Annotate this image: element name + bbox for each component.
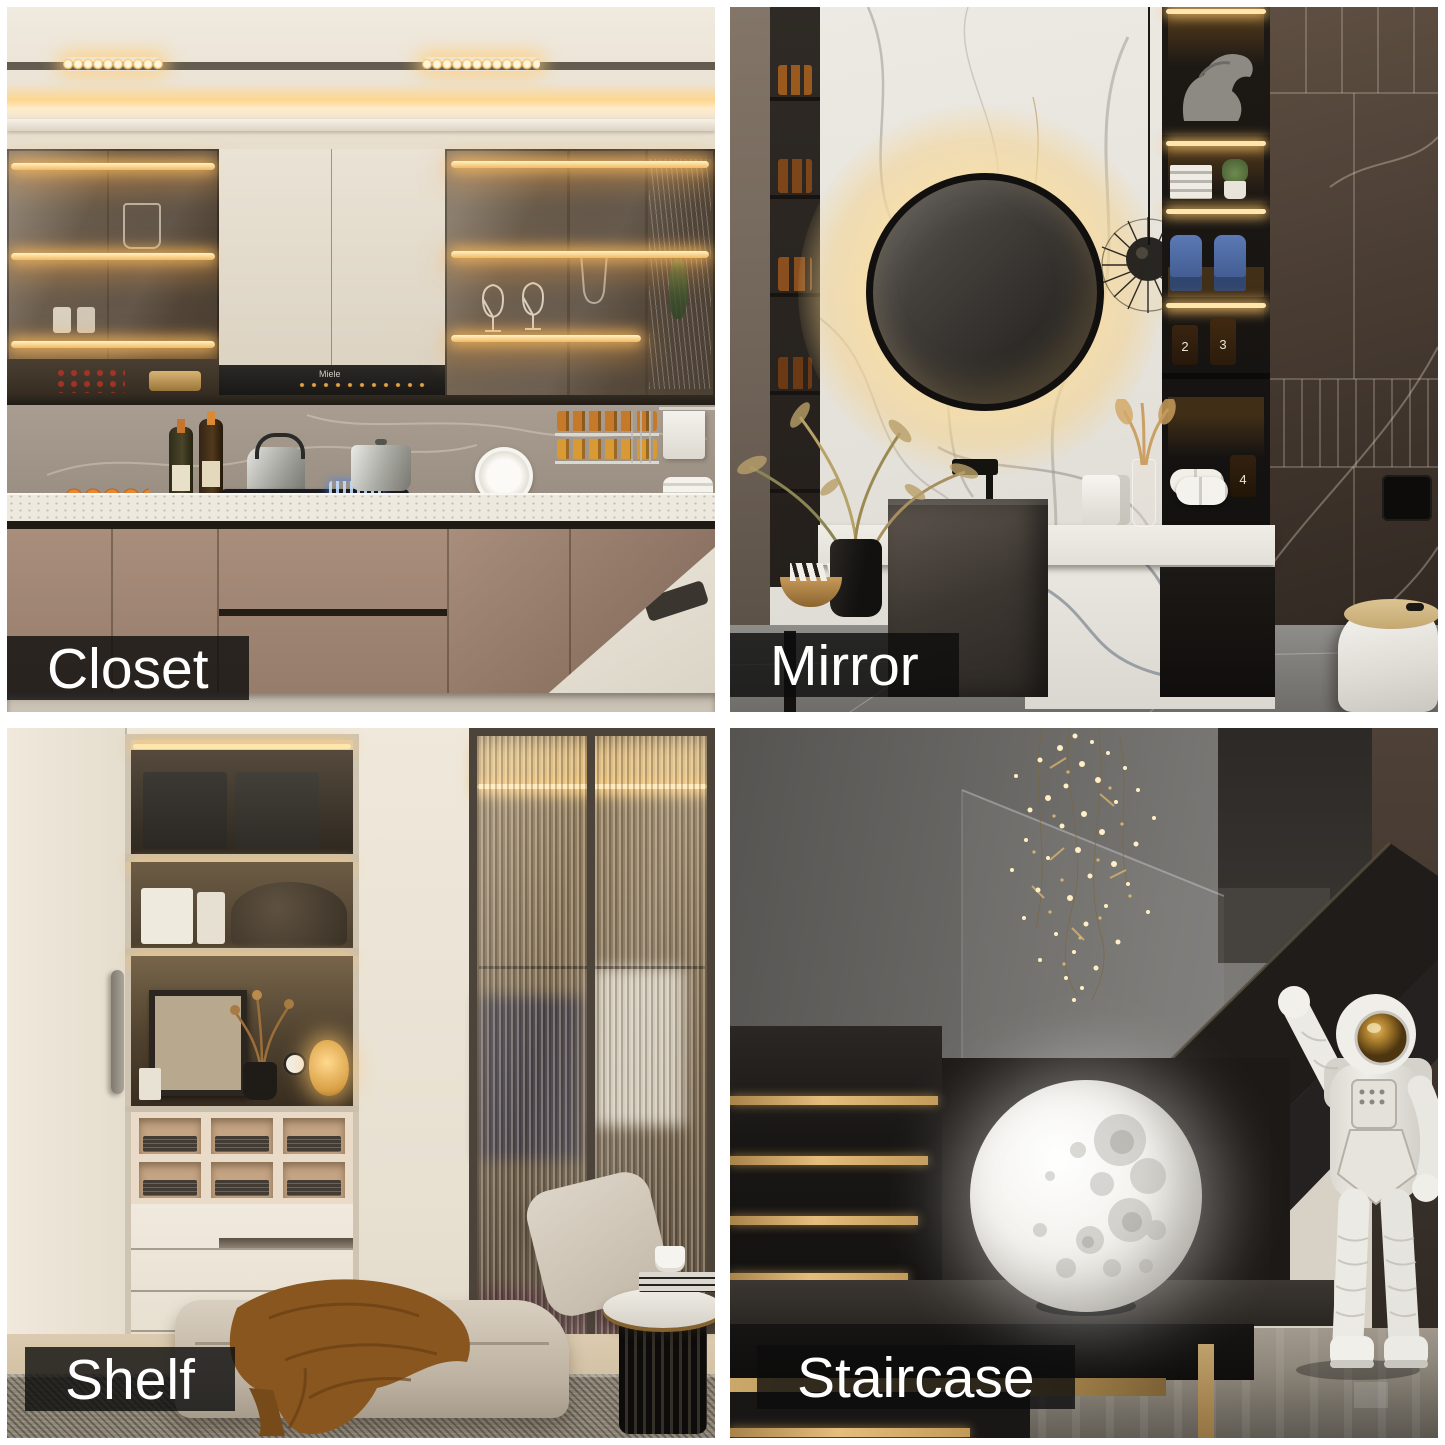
storage-box xyxy=(143,772,227,850)
shelf-board xyxy=(125,948,359,956)
moon-craters xyxy=(970,1080,1202,1312)
table-clock xyxy=(283,1052,307,1076)
label-shelf: Shelf xyxy=(25,1347,235,1411)
photo-walkin-closet: Shelf xyxy=(7,728,715,1438)
astronaut-figurine xyxy=(1250,968,1438,1408)
folded-clothes xyxy=(287,1136,341,1152)
side-table-body xyxy=(619,1318,707,1434)
folded-clothes xyxy=(215,1180,269,1196)
countertop xyxy=(7,493,715,521)
amber-bottles xyxy=(778,65,812,95)
shelf-led xyxy=(133,744,351,749)
ceiling-spotlight-strip xyxy=(63,57,163,71)
shelf-line xyxy=(1162,373,1270,379)
bottle-label xyxy=(202,461,220,487)
led-strip xyxy=(11,253,215,260)
range-hood: Miele xyxy=(219,365,445,399)
bud-vase xyxy=(1132,459,1156,527)
dark-pillow-roll xyxy=(231,882,347,946)
niche-led xyxy=(1166,141,1266,146)
under-counter-shadow xyxy=(1160,567,1275,697)
side-table-top xyxy=(603,1288,715,1328)
led-strip xyxy=(451,161,709,168)
stair-led-strip xyxy=(730,1156,928,1165)
cabinet-door-seam xyxy=(331,149,332,367)
display-niche xyxy=(131,956,353,1106)
small-white-box xyxy=(139,1068,161,1100)
succulent-plant xyxy=(1222,159,1248,183)
door-frame-rail xyxy=(469,728,715,736)
rolled-towels-pair xyxy=(1176,477,1228,505)
interior-photo-collage: Miele xyxy=(0,0,1445,1445)
amber-bottles xyxy=(778,159,812,193)
top-niche xyxy=(131,750,353,854)
ceiling-molding xyxy=(7,119,715,131)
door-frame-bar xyxy=(707,728,715,1438)
bedding-niche xyxy=(131,862,353,948)
glass-cabinet-right xyxy=(445,149,715,399)
blue-foo-dog xyxy=(1214,235,1246,291)
white-tubes xyxy=(790,563,830,581)
white-storage-box xyxy=(197,892,225,944)
drawer-groove xyxy=(131,1248,353,1250)
shelf-line xyxy=(770,195,820,199)
soap-dispenser-set xyxy=(1082,475,1130,525)
led-strip xyxy=(451,335,641,342)
stair-led-strip xyxy=(730,1096,938,1105)
utensil-rail xyxy=(659,407,715,410)
label-closet: Closet xyxy=(7,636,249,700)
drawer-gap xyxy=(219,1238,353,1248)
ceramic-cup xyxy=(53,307,71,333)
gold-crumpled-lamp xyxy=(309,1040,349,1096)
niche-led xyxy=(1166,9,1266,14)
fairy-light-chandelier xyxy=(980,728,1180,1008)
label-mirror: Mirror xyxy=(730,633,959,697)
led-strip xyxy=(451,251,709,258)
numbered-jar: 4 xyxy=(1230,455,1256,497)
magazine-stack xyxy=(639,1272,715,1292)
wardrobe-handle xyxy=(111,970,124,1094)
numbered-bottle: 2 xyxy=(1172,325,1198,365)
drawer-groove xyxy=(219,609,447,616)
stair-led-strip xyxy=(730,1216,918,1225)
cabinet-center xyxy=(219,149,445,367)
horse-sculpture xyxy=(1170,37,1262,133)
plant-hint xyxy=(669,259,687,319)
pampas-stems xyxy=(1110,399,1180,465)
moon-lamp xyxy=(970,1080,1202,1312)
kettle-handle xyxy=(255,433,305,459)
ceramic-cup xyxy=(77,307,95,333)
cabinet-lower-shelf xyxy=(7,359,219,399)
cubby-block xyxy=(131,1112,353,1204)
folded-clothes xyxy=(143,1180,197,1196)
red-berry-branch xyxy=(55,367,125,393)
shelf-line xyxy=(770,97,820,101)
folded-clothes xyxy=(143,1136,197,1152)
bottle-number: 3 xyxy=(1219,337,1226,352)
bottle-capsule xyxy=(207,411,215,425)
label-staircase: Staircase xyxy=(757,1345,1075,1409)
counter-recess xyxy=(7,521,715,529)
toilet-lid xyxy=(1344,599,1438,629)
step-vertical-edge xyxy=(1198,1344,1214,1438)
niche-led xyxy=(1166,209,1266,214)
led-strip xyxy=(11,163,215,170)
cove-light-glow xyxy=(7,83,715,121)
led-strip xyxy=(11,341,215,348)
gold-tray xyxy=(149,371,201,391)
stair-led-strip xyxy=(730,1428,970,1437)
black-vase-small xyxy=(243,1062,277,1100)
door-frame-bar xyxy=(587,728,595,1438)
toilet-button xyxy=(1406,603,1424,611)
cooking-pot xyxy=(351,445,411,491)
throw-blanket xyxy=(189,1268,509,1438)
toilet-flush-plate xyxy=(1382,475,1432,521)
storage-box xyxy=(235,772,319,850)
wardrobe-left-panel xyxy=(7,728,127,1380)
plant-pot xyxy=(1224,181,1246,199)
ceiling-spotlight-strip xyxy=(422,57,540,71)
wine-glasses xyxy=(463,249,643,339)
bottle-label xyxy=(172,465,190,491)
niche-led xyxy=(1166,303,1266,308)
coffee-cup xyxy=(655,1246,685,1268)
numbered-bottle: 3 xyxy=(1210,317,1236,365)
glass-mug xyxy=(123,203,161,249)
bottle-capsule xyxy=(177,419,185,433)
blue-foo-dog xyxy=(1170,235,1202,291)
hood-control-lights xyxy=(299,383,429,387)
cabinet-frame-seam xyxy=(645,149,648,399)
white-storage-box xyxy=(141,888,193,944)
folded-clothes xyxy=(287,1180,341,1196)
jar-number: 4 xyxy=(1239,472,1246,487)
hanging-utensils xyxy=(631,411,657,463)
photo-staircase: Staircase xyxy=(730,728,1438,1438)
photo-kitchen: Miele xyxy=(7,7,715,712)
book-stack xyxy=(1170,165,1212,199)
shelf-board xyxy=(125,854,359,862)
display-niche-column: 2 3 4 xyxy=(1162,7,1270,552)
bottle-number: 2 xyxy=(1181,339,1188,354)
hood-brand-text: Miele xyxy=(319,369,341,379)
hanging-towel xyxy=(663,411,705,459)
pot-lid-handle xyxy=(375,439,387,445)
folded-clothes xyxy=(215,1136,269,1152)
photo-bathroom: 2 3 4 xyxy=(730,7,1438,712)
